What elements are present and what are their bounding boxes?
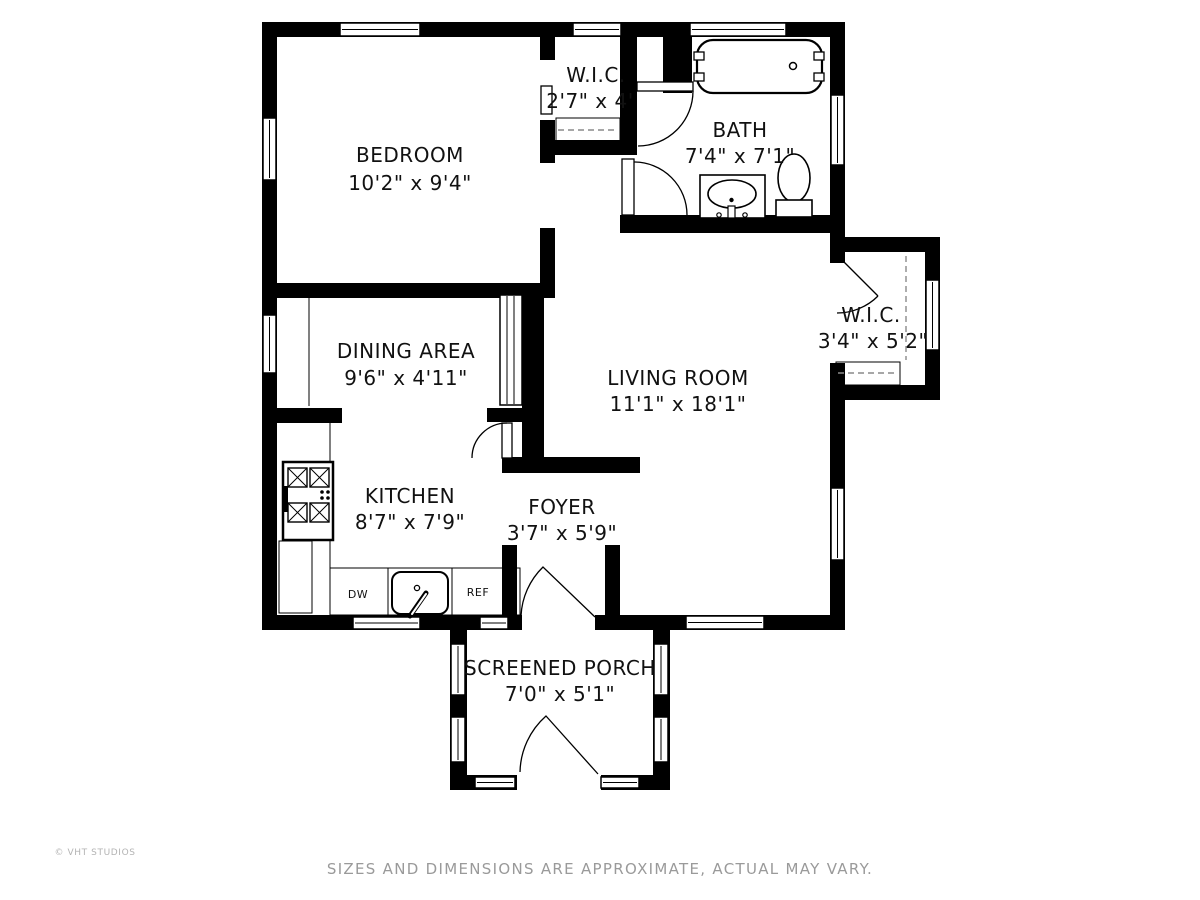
room-dims-dining: 9'6" x 4'11": [344, 366, 468, 390]
cased-opening: [500, 295, 522, 405]
wall: [605, 545, 620, 615]
room-label-kitchen: KITCHEN: [365, 484, 455, 508]
window: [263, 118, 276, 180]
room-dims-wic-right: 3'4" x 5'2": [818, 329, 928, 353]
wall: [830, 237, 940, 252]
door-swing: [622, 159, 687, 215]
window: [654, 644, 668, 695]
room-dims-bedroom: 10'2" x 9'4": [348, 171, 472, 195]
window: [690, 23, 786, 36]
wall: [502, 457, 640, 473]
room-dims-kitchen: 8'7" x 7'9": [355, 510, 465, 534]
door-swing: [637, 82, 693, 146]
dishwasher-label: DW: [348, 588, 368, 601]
room-dims-porch: 7'0" x 5'1": [505, 682, 615, 706]
window: [686, 616, 764, 629]
door-opening: [517, 775, 601, 790]
window: [573, 23, 621, 36]
wall: [540, 120, 555, 163]
wall: [487, 408, 533, 422]
room-dims-living: 11'1" x 18'1": [610, 392, 747, 416]
disclaimer-text: SIZES AND DIMENSIONS ARE APPROXIMATE, AC…: [327, 860, 873, 878]
window: [451, 717, 465, 762]
wall: [262, 408, 342, 423]
door-swing: [521, 567, 595, 617]
room-label-wic-right: W.I.C.: [841, 303, 900, 327]
window: [475, 777, 515, 788]
window: [263, 315, 276, 373]
window: [831, 488, 844, 560]
room-dims-foyer: 3'7" x 5'9": [507, 521, 617, 545]
room-dims-wic-top: 2'7" x 4': [546, 89, 633, 113]
window: [451, 644, 465, 695]
window: [831, 95, 844, 165]
copyright-text: © VHT STUDIOS: [54, 848, 135, 858]
room-label-bath: BATH: [712, 118, 767, 142]
window: [353, 617, 420, 629]
room-label-bedroom: BEDROOM: [356, 143, 464, 167]
bathtub-icon: [694, 40, 824, 93]
kitchen-sink-icon: [392, 572, 448, 616]
room-label-foyer: FOYER: [528, 495, 595, 519]
bathroom-sink-icon: [700, 175, 765, 218]
door-opening: [522, 615, 595, 630]
stove-icon: [283, 462, 333, 540]
refrigerator-label: REF: [467, 586, 489, 599]
wall: [522, 293, 544, 458]
closet-shelf: [556, 118, 620, 142]
door-swing: [472, 423, 512, 458]
room-label-living: LIVING ROOM: [607, 366, 749, 390]
window: [340, 23, 420, 36]
wall: [502, 545, 517, 615]
room-dims-bath: 7'4" x 7'1": [685, 144, 795, 168]
room-label-wic-top: W.I.C.: [566, 63, 625, 87]
window: [601, 777, 639, 788]
wall: [830, 385, 940, 400]
floor-plan-page: BEDROOM 10'2" x 9'4" W.I.C. 2'7" x 4' BA…: [0, 0, 1200, 900]
door-swing: [520, 716, 598, 774]
room-label-porch: SCREENED PORCH: [464, 656, 656, 680]
floor-plan-drawing: BEDROOM 10'2" x 9'4" W.I.C. 2'7" x 4' BA…: [0, 0, 1200, 900]
wall: [540, 22, 555, 60]
window: [480, 617, 508, 629]
room-label-dining: DINING AREA: [337, 339, 475, 363]
window: [654, 717, 668, 762]
